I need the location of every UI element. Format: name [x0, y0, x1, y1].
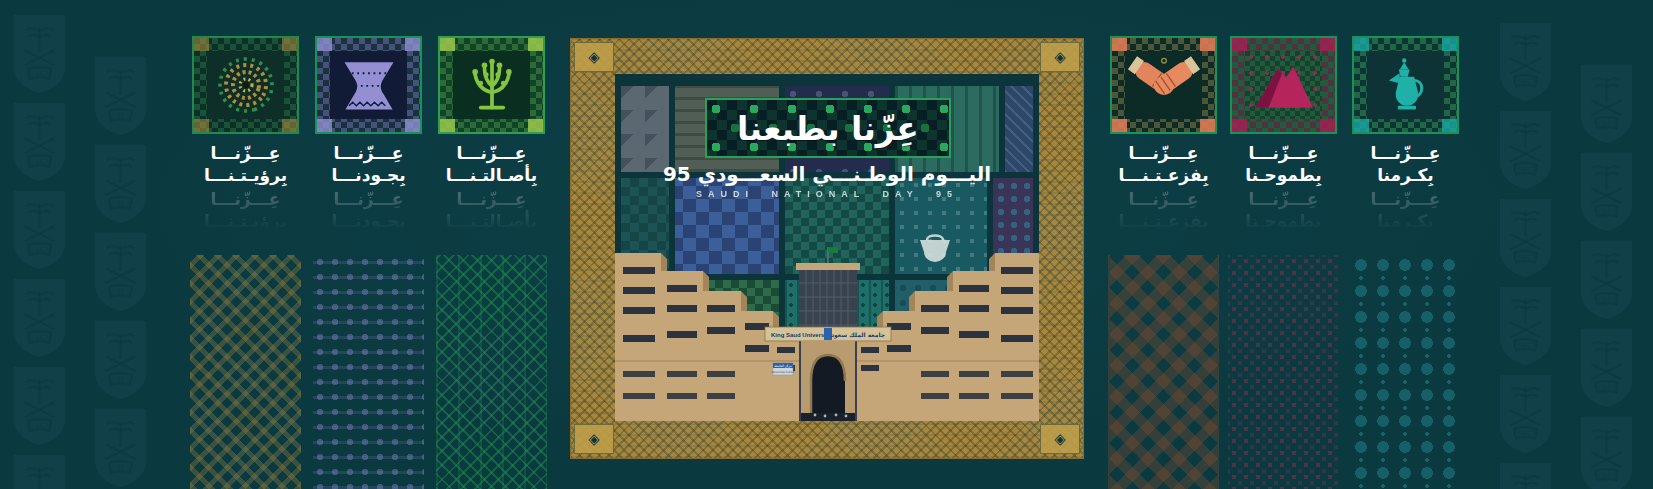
border-corner-ornament: ◈: [574, 424, 614, 454]
caption-line: عِـــزّنـــا: [430, 188, 553, 210]
caption-line: عِـــزّنـــا: [1102, 188, 1225, 210]
saudi-flag: [828, 247, 838, 253]
vision-caption: عِـــزّنـــا بِرؤيـتـنـــا: [184, 142, 307, 186]
national-day-banner: 1957 عِـــ: [0, 0, 1653, 489]
vision-tile-center: [207, 51, 284, 119]
caption-line: بِأصـالتـنـــا: [430, 210, 553, 232]
quilt-patch: [1005, 86, 1033, 172]
border-corner-ornament: ◈: [1040, 42, 1080, 72]
fazaa-tile-center: [1125, 51, 1202, 119]
quality-tile: [315, 36, 422, 134]
caption-line: عِـــزّنـــا: [430, 142, 553, 164]
caption-line: بِرؤيـتـنـــا: [184, 210, 307, 232]
slogan-title: عِزّنا بطبعنا: [737, 112, 919, 145]
caption-line: بِفزعـتـنـــا: [1102, 164, 1225, 186]
caption-line: بِجـودنـــا: [307, 164, 430, 186]
center-poster-panel: ◈ ◈ ◈ ◈ عِزّنا بطبعنا: [570, 38, 1084, 459]
feature-generosity: عِـــزّنـــا بِكـرمنا عِـــزّنـــا بِكـر…: [1352, 0, 1459, 489]
generosity-pattern-column: [1350, 255, 1461, 489]
caption-line: عِـــزّنـــا: [1344, 142, 1467, 164]
feature-fazaa: عِـــزّنـــا بِفزعـتـنـــا عِـــزّنـــا …: [1110, 0, 1217, 489]
authenticity-caption: عِـــزّنـــا بِأصـالتـنـــا: [430, 142, 553, 186]
quality-caption-reflection: عِـــزّنـــا بِجـودنـــا: [307, 188, 430, 232]
ambition-tile-center: [1245, 51, 1322, 119]
fazaa-pattern-column: [1108, 255, 1219, 489]
subtitle-english: SAUDI NATIONAL DAY 95: [615, 189, 1039, 199]
ksu-campus-building: King Saud University جامعة الملك سعود مر…: [615, 243, 1039, 421]
caption-line: بِأصـالتـنـــا: [430, 164, 553, 186]
ambition-caption-reflection: عِـــزّنـــا بِطموحـنا: [1222, 188, 1345, 232]
generosity-caption-reflection: عِـــزّنـــا بِكـرمنا: [1344, 188, 1467, 232]
authenticity-tile: [438, 36, 545, 134]
ambition-caption: عِـــزّنـــا بِطموحـنا: [1222, 142, 1345, 186]
vision-pattern-column: [190, 255, 301, 489]
incense-burner-icon: [340, 56, 398, 114]
generosity-caption: عِـــزّنـــا بِكـرمنا: [1344, 142, 1467, 186]
border-corner-ornament: ◈: [574, 42, 614, 72]
vision-tile: [192, 36, 299, 134]
fazaa-caption: عِـــزّنـــا بِفزعـتـنـــا: [1102, 142, 1225, 186]
caption-line: عِـــزّنـــا: [184, 188, 307, 210]
quilt-patch: [621, 86, 669, 172]
authenticity-caption-reflection: عِـــزّنـــا بِأصـالتـنـــا: [430, 188, 553, 232]
caption-line: عِـــزّنـــا: [1222, 142, 1345, 164]
feature-vision: عِـــزّنـــا بِرؤيـتـنـــا عِـــزّنـــا …: [192, 0, 299, 489]
university-center-sign: مركز الجامعة University Center: [772, 363, 796, 375]
poster-inner: عِزّنا بطبعنا اليـــوم الوطـنـــي السعــ…: [615, 74, 1039, 421]
caption-line: عِـــزّنـــا: [184, 142, 307, 164]
caption-line: بِرؤيـتـنـــا: [184, 164, 307, 186]
caption-line: بِطموحـنا: [1222, 210, 1345, 232]
sunburst-spiral-icon: [214, 53, 278, 117]
authenticity-tile-center: [453, 51, 530, 119]
feature-authenticity: عِـــزّنـــا بِأصـالتـنـــا عِـــزّنـــا…: [438, 0, 545, 489]
quality-tile-center: [330, 51, 407, 119]
caption-line: عِـــزّنـــا: [307, 142, 430, 164]
caption-line: بِطموحـنا: [1222, 164, 1345, 186]
ambition-pattern-column: [1228, 255, 1339, 489]
quality-caption: عِـــزّنـــا بِجـودنـــا: [307, 142, 430, 186]
side-sign-english: University Center: [772, 371, 796, 374]
caption-line: عِـــزّنـــا: [307, 188, 430, 210]
mountain-icon: [1251, 60, 1317, 110]
caption-line: بِكـرمنا: [1344, 164, 1467, 186]
caption-line: بِجـودنـــا: [307, 210, 430, 232]
gate-sign-arabic: جامعة الملك سعود: [831, 331, 885, 339]
ambition-tile: [1230, 36, 1337, 134]
generosity-tile: [1352, 36, 1459, 134]
caption-line: عِـــزّنـــا: [1222, 188, 1345, 210]
gate-sign-english: King Saud University: [771, 332, 832, 338]
fazaa-tile: [1110, 36, 1217, 134]
quality-pattern-column: [313, 255, 424, 489]
authenticity-pattern-column: [436, 255, 547, 489]
caption-line: عِـــزّنـــا: [1102, 142, 1225, 164]
caption-line: بِكـرمنا: [1344, 210, 1467, 232]
subtitle-arabic: اليـــوم الوطـنـــي السعـــودي 95: [615, 162, 1039, 186]
feature-ambition: عِـــزّنـــا بِطموحـنا عِـــزّنـــا بِطم…: [1230, 0, 1337, 489]
caption-line: بِفزعـتـنـــا: [1102, 210, 1225, 232]
vision-caption-reflection: عِـــزّنـــا بِرؤيـتـنـــا: [184, 188, 307, 232]
fazaa-caption-reflection: عِـــزّنـــا بِفزعـتـنـــا: [1102, 188, 1225, 232]
generosity-tile-center: [1367, 51, 1444, 119]
border-corner-ornament: ◈: [1040, 424, 1080, 454]
slogan-box: عِزّنا بطبعنا: [705, 98, 951, 158]
dallah-coffee-pot-icon: [1377, 56, 1435, 114]
clasped-hands-icon: [1126, 55, 1202, 115]
caption-line: عِـــزّنـــا: [1344, 188, 1467, 210]
side-sign-arabic: مركز الجامعة: [774, 364, 792, 368]
tree-icon: [462, 55, 522, 115]
feature-quality: عِـــزّنـــا بِجـودنـــا عِـــزّنـــا بِ…: [315, 0, 422, 489]
